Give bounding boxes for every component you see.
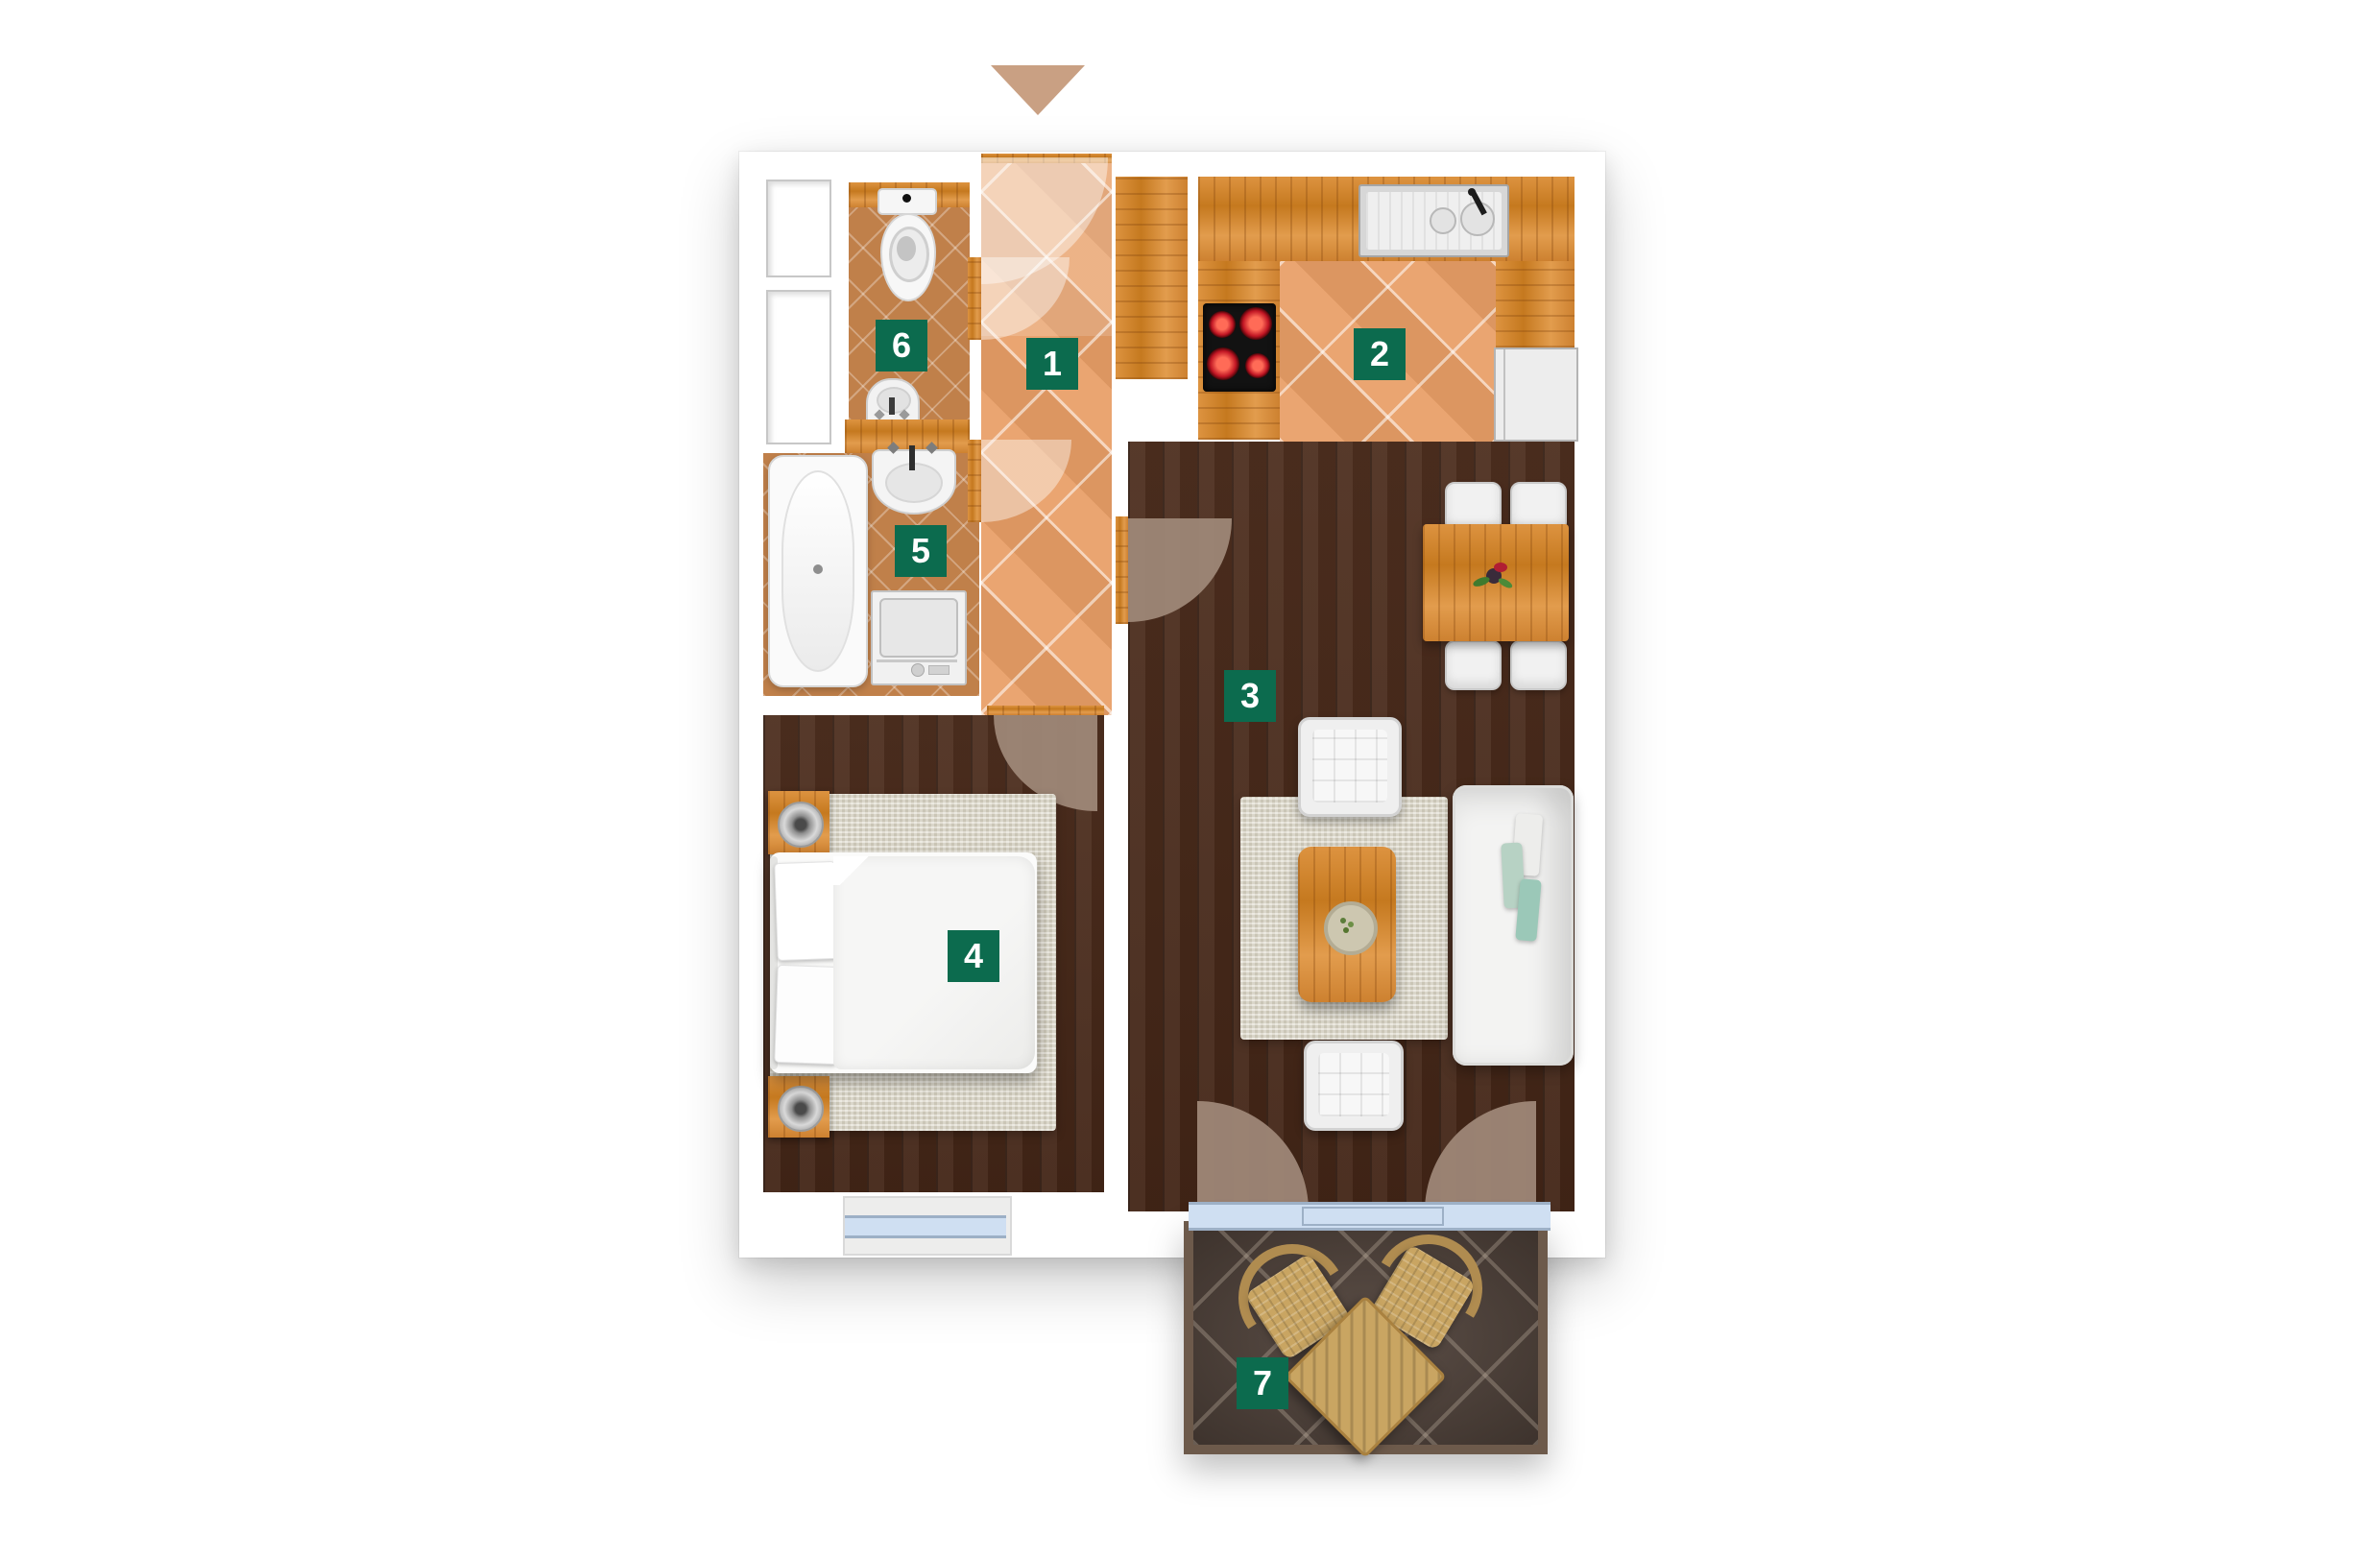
wall-niche-lower [766,290,831,444]
wall-niche-upper [766,180,831,277]
fridge-cabinet-icon [1494,348,1578,442]
bedroom-window [843,1196,1012,1256]
nightstand [768,1076,829,1138]
dining-chair [1510,640,1567,690]
balcony-door-glazing [1189,1202,1551,1231]
bathtub-icon [768,455,868,687]
floor-plan-canvas: 1 2 3 4 5 6 7 [0,0,2380,1558]
wc-door-threshold [968,257,981,340]
room-label-balcony: 7 [1237,1357,1288,1409]
bathroom-vanity-counter [845,419,970,453]
sofa-icon [1453,785,1574,1066]
coffee-table-icon [1298,847,1396,1002]
toilet-icon [876,186,939,301]
entrance-arrow-icon [991,65,1085,115]
kitchen-sink-icon [1358,184,1509,257]
room-label-hallway: 1 [1026,338,1078,390]
bathroom-sink-icon [872,449,956,515]
washing-machine-icon [871,590,967,685]
room-label-wc: 6 [876,320,927,372]
room-label-bathroom: 5 [895,525,947,577]
bathroom-door-threshold [968,440,981,522]
armchair [1304,1041,1404,1131]
nightstand [768,791,829,854]
living-room-door-threshold [1116,516,1128,624]
cooktop-icon [1203,303,1276,392]
armchair [1298,717,1402,817]
room-label-living-room: 3 [1224,670,1276,722]
room-label-kitchen: 2 [1354,328,1406,380]
dining-table-icon [1423,524,1569,641]
kitchen-tall-cabinet [1116,177,1188,379]
dining-chair [1445,640,1502,690]
bedroom-door-threshold [987,706,1104,715]
kitchen-counter-right [1496,261,1575,348]
room-label-bedroom: 4 [948,930,999,982]
